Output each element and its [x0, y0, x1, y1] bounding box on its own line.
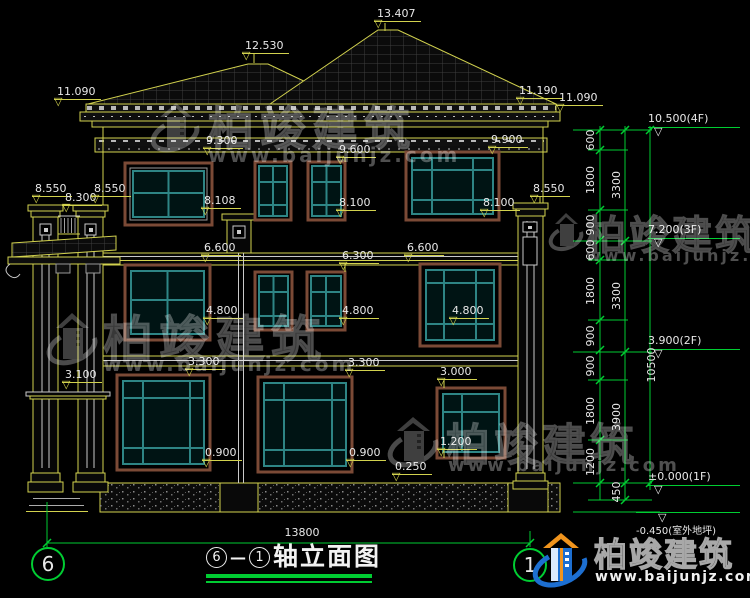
level-triangle-icon: ▽: [339, 260, 347, 271]
cad-linework: [0, 0, 750, 598]
level-triangle-icon: ▽: [201, 205, 209, 216]
level-triangle-icon: ▽: [202, 457, 210, 468]
level-marker: 3.300▽: [345, 357, 385, 371]
level-triangle-icon: ▽: [62, 202, 70, 213]
dim-floor: 3900: [611, 387, 623, 447]
level-marker: 9.300▽: [203, 135, 243, 149]
roof: [88, 30, 556, 104]
level-marker: 4.800▽: [339, 305, 379, 319]
footer-logo-url: www.baijunjz.com: [595, 569, 750, 585]
level-marker: 6.300▽: [339, 250, 379, 264]
level-marker: 11.090▽: [556, 92, 603, 106]
level-triangle-icon: ▽: [185, 366, 193, 377]
level-marker: 9.600▽: [336, 144, 376, 158]
level-triangle-icon: ▽: [91, 193, 99, 204]
level-triangle-icon: ▽: [203, 145, 211, 156]
elevation-drawing-canvas: 柏竣建筑 www.baijunjz.com 柏竣建筑 www.baijunjz.…: [0, 0, 750, 598]
level-marker: 0.900▽: [202, 447, 242, 461]
level-marker: 8.100▽: [336, 197, 376, 211]
storey-level-3f: 7.200(3F)▽: [648, 223, 740, 239]
level-marker: 13.407▽: [374, 8, 421, 22]
level-triangle-icon: ▽: [336, 154, 344, 165]
level-triangle-icon: ▽: [654, 483, 662, 496]
level-triangle-icon: ▽: [530, 193, 538, 204]
level-triangle-icon: ▽: [404, 252, 412, 263]
title-underline-thick: [206, 574, 372, 578]
level-marker: 0.250▽: [392, 461, 432, 475]
level-triangle-icon: ▽: [203, 315, 211, 326]
dim-segment: 1200: [585, 432, 597, 492]
level-triangle-icon: ▽: [437, 376, 445, 387]
windows: [117, 152, 505, 472]
level-triangle-icon: ▽: [654, 125, 662, 138]
window-top-left: [125, 163, 212, 225]
level-triangle-icon: ▽: [488, 144, 496, 155]
title-axis-circle-left: 6: [206, 547, 227, 568]
level-triangle-icon: ▽: [654, 236, 662, 249]
level-marker: 8.550▽: [530, 183, 570, 197]
level-marker: 6.600▽: [404, 242, 444, 256]
level-marker: 8.108▽: [201, 195, 241, 209]
title-axis-circle-right: 1: [249, 547, 270, 568]
level-marker: 4.800▽: [203, 305, 243, 319]
storey-level-4f: 10.500(4F)▽: [648, 112, 740, 128]
level-triangle-icon: ▽: [449, 315, 457, 326]
level-triangle-icon: ▽: [62, 379, 70, 390]
level-triangle-icon: ▽: [516, 95, 524, 106]
dim-total-width: 13800: [272, 526, 332, 539]
window-mid-left: [125, 265, 210, 340]
level-triangle-icon: ▽: [374, 18, 382, 29]
eave-cornice: [80, 104, 560, 127]
dim-total-height: 10500: [646, 335, 658, 395]
window-ground-left: [117, 375, 210, 470]
level-marker: 3.100▽: [62, 369, 102, 383]
level-marker: 6.600▽: [201, 242, 241, 256]
level-marker: 3.000▽: [437, 366, 477, 380]
upper-band: [95, 138, 547, 152]
level-marker: 0.900▽: [346, 447, 386, 461]
level-triangle-icon: ▽: [54, 96, 62, 107]
title-text: 轴立面图: [273, 544, 381, 570]
drawing-title: 6 — 1 轴立面图: [206, 544, 381, 570]
level-triangle-icon: ▽: [345, 367, 353, 378]
level-triangle-icon: ▽: [201, 252, 209, 263]
level-triangle-icon: ▽: [336, 207, 344, 218]
footer-logo: 柏竣建筑 www.baijunjz.com: [532, 522, 747, 594]
storey-level-1f: ±0.000(1F)▽: [648, 470, 740, 486]
window-top-mid1: [255, 162, 291, 220]
axis-bubble-6: 6: [31, 547, 65, 581]
dim-floor: 3300: [611, 155, 623, 215]
title-dash: —: [230, 548, 246, 567]
level-marker: 8.550▽: [91, 183, 131, 197]
level-triangle-icon: ▽: [339, 315, 347, 326]
footer-logo-icon: [532, 524, 590, 592]
level-triangle-icon: ▽: [392, 471, 400, 482]
level-marker: 12.530▽: [242, 40, 289, 54]
window-ground-mid: [258, 377, 352, 472]
level-triangle-icon: ▽: [437, 446, 445, 457]
dim-below-ground: 450: [611, 462, 623, 522]
right-pilaster: [513, 203, 548, 489]
level-triangle-icon: ▽: [242, 50, 250, 61]
level-marker: 3.300▽: [185, 356, 225, 370]
level-triangle-icon: ▽: [346, 457, 354, 468]
level-triangle-icon: ▽: [32, 193, 40, 204]
level-triangle-icon: ▽: [480, 207, 488, 218]
title-underline-thin: [206, 581, 372, 583]
storey-level-2f: 3.900(2F)▽: [648, 334, 740, 350]
level-marker: 4.800▽: [449, 305, 489, 319]
level-marker: 8.100▽: [480, 197, 520, 211]
dim-floor: 3300: [611, 266, 623, 326]
level-marker: 9.900▽: [488, 134, 528, 148]
level-marker: 1.200▽: [437, 436, 477, 450]
level-marker: 11.090▽: [54, 86, 101, 100]
window-mid-mid1: [255, 272, 292, 330]
level-triangle-icon: ▽: [556, 102, 564, 113]
